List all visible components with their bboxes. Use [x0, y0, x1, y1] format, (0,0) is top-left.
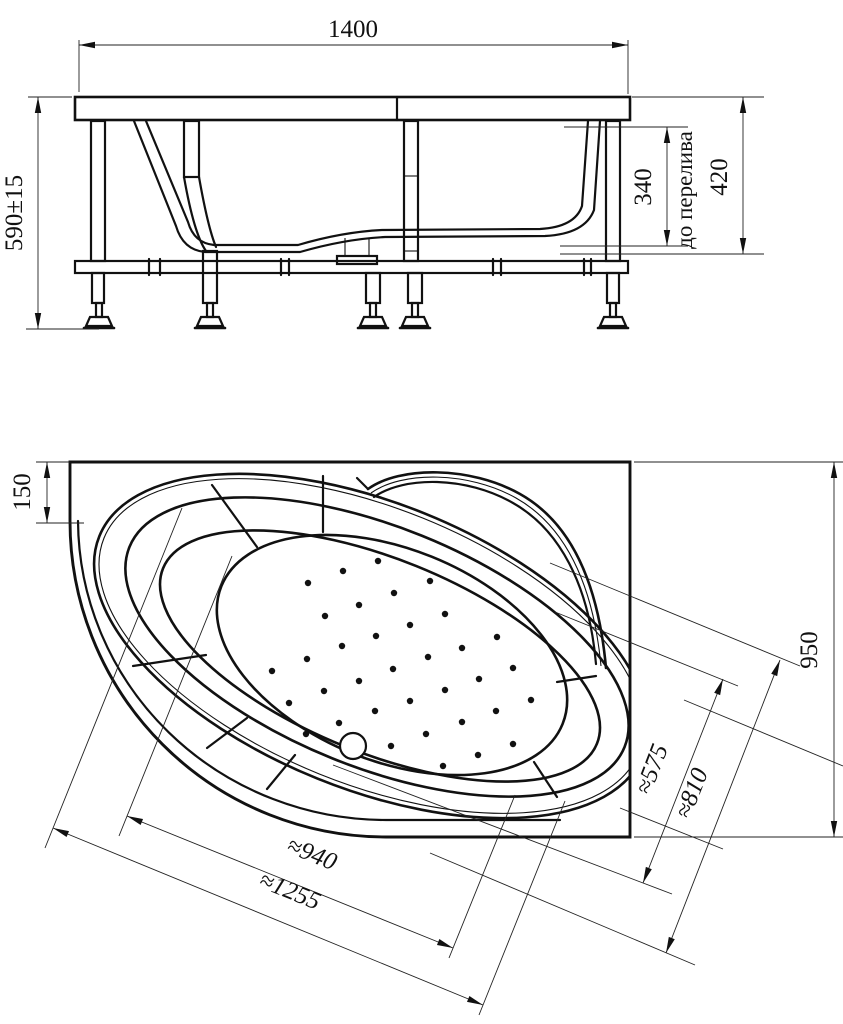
rim-curves — [46, 404, 696, 889]
extension-lines — [45, 508, 843, 1015]
dim-340: 340 до перелива — [560, 127, 697, 249]
jet-dot — [304, 656, 310, 662]
headrest-band-outer — [368, 472, 606, 668]
bracket-curve — [184, 177, 206, 251]
drain-circle — [340, 733, 366, 759]
jet-dot — [375, 558, 381, 564]
dim-575-label: ≈575 — [630, 741, 674, 799]
dim-420-label: 420 — [706, 158, 733, 196]
bathtub-technical-drawing: 1400 590±15 340 до перелива 420 — [0, 0, 843, 1024]
bowl-floor-edge — [182, 488, 603, 822]
dim-940-label: ≈940 — [283, 832, 341, 876]
rim-band — [75, 97, 630, 120]
bowl-outer-section — [134, 121, 600, 252]
front-view: 1400 590±15 340 до перелива 420 — [1, 16, 764, 329]
jet-dot — [423, 731, 429, 737]
jet-dot — [340, 568, 346, 574]
jet-dot — [528, 697, 534, 703]
jet-dot — [321, 688, 327, 694]
headrest-band-inner — [374, 482, 596, 664]
jet-dot — [336, 720, 342, 726]
jet-dot — [390, 666, 396, 672]
jet-dot — [407, 622, 413, 628]
dim-810: ≈810 — [666, 660, 780, 953]
plan-view: 150 950 ≈940 ≈1 — [9, 404, 843, 1015]
leg-bracket — [184, 121, 199, 177]
jet-dot — [373, 633, 379, 639]
overflow-note-label: до перелива — [672, 131, 697, 249]
jet-dot — [510, 741, 516, 747]
jet-dot — [440, 763, 446, 769]
dim-590-label: 590±15 — [1, 175, 28, 251]
dim-1400-label: 1400 — [328, 16, 378, 43]
jet-dot — [339, 643, 345, 649]
jet-dot — [475, 752, 481, 758]
headrest-hook — [357, 478, 368, 489]
jet-dot — [494, 634, 500, 640]
bracket-curve — [199, 177, 216, 247]
jet-dot — [407, 698, 413, 704]
jet-dot — [356, 602, 362, 608]
rim-middle-edge — [84, 436, 669, 859]
dim-950-label: 950 — [796, 631, 823, 669]
jet-dot — [427, 578, 433, 584]
bowl-inner-section — [146, 121, 588, 245]
jet-dot — [510, 665, 516, 671]
jet-dot — [356, 678, 362, 684]
jet-dot — [459, 645, 465, 651]
jet-dot — [493, 708, 499, 714]
drawing-page: 1400 590±15 340 до перелива 420 — [0, 0, 843, 1024]
jet-dot — [303, 731, 309, 737]
jet-dot — [388, 743, 394, 749]
jet-dot — [305, 580, 311, 586]
jet-dot — [459, 719, 465, 725]
dim-150: 150 — [9, 462, 84, 523]
jet-dot — [391, 590, 397, 596]
jet-dot — [372, 708, 378, 714]
dim-150-label: 150 — [9, 473, 36, 511]
jet-dot — [442, 611, 448, 617]
jet-dot — [476, 676, 482, 682]
jet-dot — [269, 668, 275, 674]
frame-rail — [75, 261, 628, 273]
dim-1255: ≈1255 — [53, 828, 483, 1005]
jet-dot — [286, 700, 292, 706]
jet-dot — [425, 654, 431, 660]
feet — [84, 303, 628, 328]
dim-590: 590±15 — [1, 97, 99, 329]
dim-1400: 1400 — [79, 16, 628, 94]
dim-810-label: ≈810 — [670, 764, 714, 822]
jet-dot — [322, 613, 328, 619]
jet-dot — [442, 687, 448, 693]
dim-340-label: 340 — [630, 168, 657, 206]
dim-1255-label: ≈1255 — [255, 867, 324, 916]
dim-950: 950 — [634, 462, 843, 837]
